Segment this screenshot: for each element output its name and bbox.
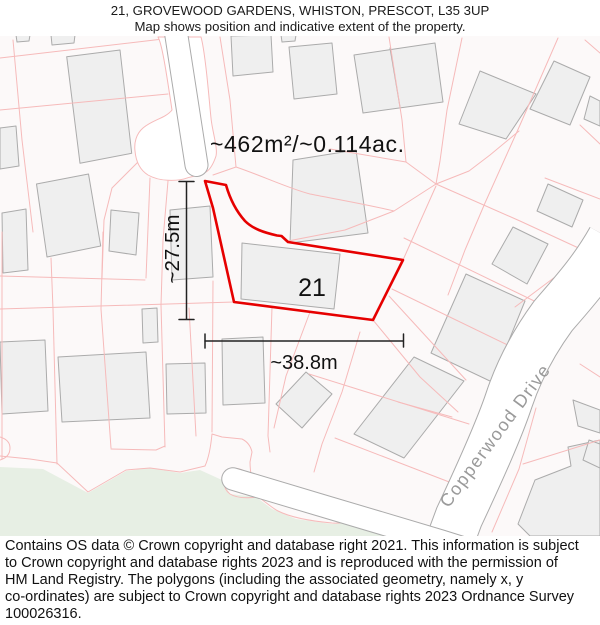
svg-text:~27.5m: ~27.5m	[161, 215, 184, 284]
svg-text:~38.8m: ~38.8m	[270, 352, 337, 374]
svg-text:21: 21	[298, 274, 326, 302]
svg-text:~462m²/~0.114ac.: ~462m²/~0.114ac.	[210, 131, 405, 157]
